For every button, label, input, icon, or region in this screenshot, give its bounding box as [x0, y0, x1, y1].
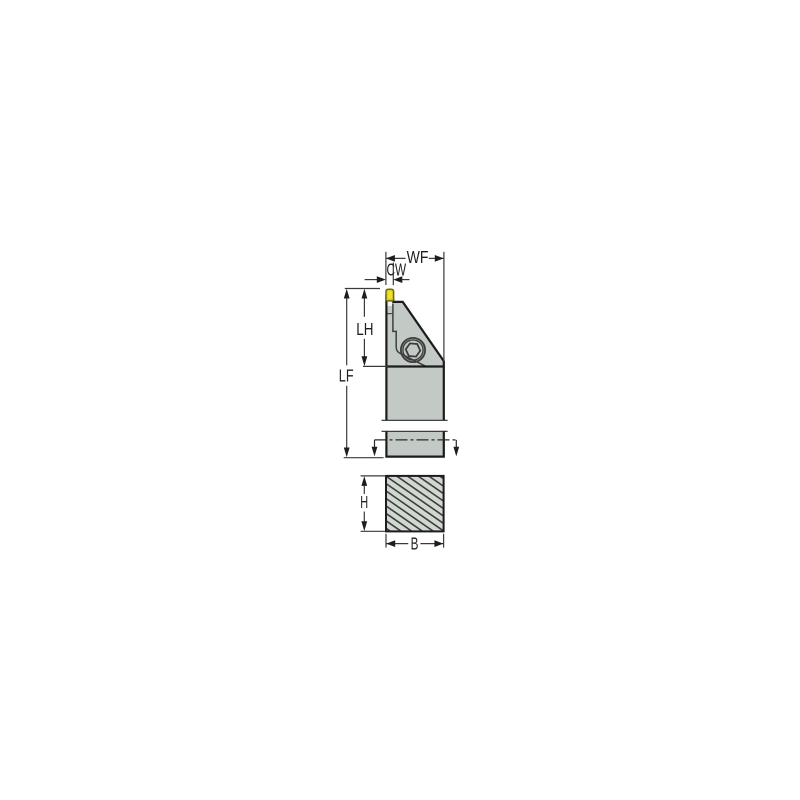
svg-text:WF: WF [407, 247, 429, 267]
svg-text:H: H [360, 492, 368, 512]
svg-text:LF: LF [339, 365, 354, 385]
svg-text:CW: CW [387, 260, 407, 280]
svg-text:LH: LH [356, 319, 373, 339]
svg-text:B: B [411, 533, 419, 553]
